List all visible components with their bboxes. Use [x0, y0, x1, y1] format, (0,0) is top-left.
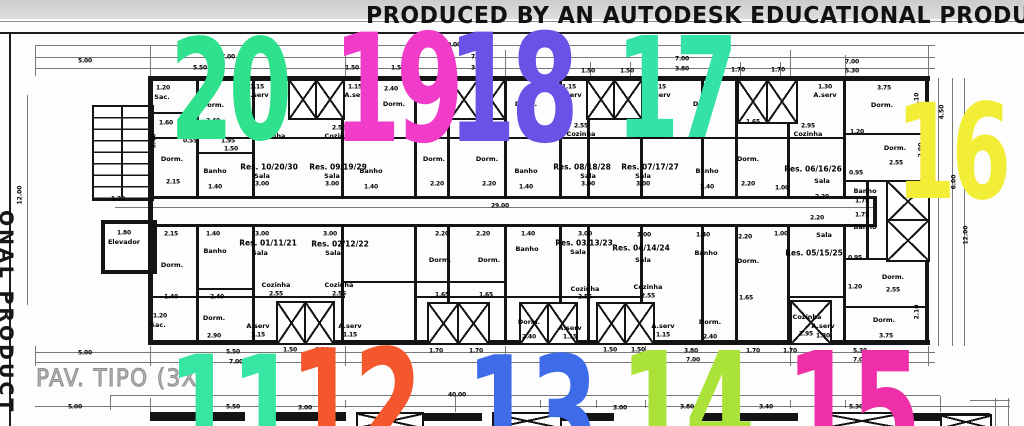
room-label: Banho: [853, 187, 876, 195]
shaft-xbox: [427, 302, 460, 345]
dimension-label: 1.70: [771, 67, 785, 74]
dimension-label: 3.40: [759, 404, 773, 411]
overlay-number-14: 14: [620, 332, 750, 426]
dimension-line: [970, 400, 1010, 401]
dimension-label: 1.65: [435, 292, 449, 299]
dimension-label: 2.20: [815, 194, 829, 201]
dimension-line: [790, 50, 791, 76]
dimension-label: 2.55: [332, 291, 346, 298]
shaft-xbox: [288, 79, 318, 120]
wall-segment: [150, 296, 345, 298]
unit-label: Res. 05/15/25: [785, 249, 843, 258]
unit-label: Res. 02/12/22: [311, 240, 369, 249]
dimension-label: 1.50: [581, 68, 595, 75]
room-label: Cozinha: [262, 281, 291, 289]
dimension-label: 1.20: [153, 313, 167, 320]
overlay-number-16: 16: [896, 87, 1007, 219]
dimension-label: 1.50: [603, 347, 617, 354]
room-label: Sala: [580, 172, 596, 180]
room-label: Banho: [694, 249, 717, 257]
room-label: Dorm.: [737, 257, 759, 265]
dimension-label: 2.10: [914, 305, 921, 320]
dimension-label: 2.55: [641, 293, 655, 300]
shaft-xbox: [586, 79, 616, 120]
room-label: Dorm.: [429, 256, 451, 264]
dimension-label: 2.20: [482, 181, 496, 188]
dimension-label: 5.30: [845, 68, 859, 75]
room-label: Cozinha: [571, 285, 600, 293]
room-label: Elevador: [108, 238, 140, 246]
dimension-label: 1.80: [117, 230, 131, 237]
dimension-label: 2.20: [738, 234, 752, 241]
dimension-line: [928, 46, 929, 76]
wall-segment: [787, 296, 845, 298]
dimension-label: 1.40: [521, 231, 535, 238]
dimension-label: 1.70: [429, 348, 443, 355]
dimension-label: 1.40: [700, 184, 714, 191]
dimension-line: [150, 398, 151, 412]
room-label: Sac.: [150, 321, 165, 329]
dimension-label: 2.20: [741, 181, 755, 188]
dimension-label: 1.40: [206, 231, 220, 238]
cad-floorplan-screenshot: PRODUCED BY AN AUTODESK EDUCATIONAL PROD…: [0, 0, 1024, 426]
dimension-line: [150, 346, 151, 366]
dimension-line: [110, 396, 111, 410]
room-label: Sala: [635, 256, 651, 264]
dimension-label: 29.00: [491, 203, 509, 210]
dimension-label: 3.00: [325, 181, 339, 188]
dimension-label: 40.00: [448, 392, 466, 399]
dimension-line: [995, 398, 996, 426]
dimension-label: 1.00: [775, 185, 789, 192]
dimension-label: 3.00: [578, 231, 592, 238]
dimension-line: [27, 95, 28, 305]
dimension-label: 3.40: [151, 134, 158, 149]
dimension-label: 1.20: [156, 85, 170, 92]
dimension-label: 2.20: [430, 181, 444, 188]
dimension-label: 1.75: [855, 198, 869, 205]
dimension-label: 3.00: [255, 181, 269, 188]
dimension-label: 2.55: [574, 123, 588, 130]
room-label: A.serv: [813, 91, 836, 99]
dimension-label: 3.00: [255, 231, 269, 238]
dimension-label: 5.00: [68, 404, 82, 411]
dimension-label: 1.40: [364, 184, 378, 191]
room-label: Cozinha: [325, 281, 354, 289]
unit-label: Res. 04/14/24: [612, 244, 670, 253]
dimension-label: 2.20: [810, 215, 824, 222]
room-label: Banho: [853, 223, 876, 231]
dimension-label: 3.00: [323, 231, 337, 238]
dimension-line: [1008, 398, 1009, 426]
room-label: Sala: [254, 172, 270, 180]
room-label: Dorm.: [871, 101, 893, 109]
stairs: [92, 105, 154, 201]
autodesk-banner-vertical-text: ONAL PRODUCT: [0, 210, 17, 414]
dimension-label: 1.40: [519, 184, 533, 191]
wall-segment: [153, 196, 875, 199]
overlay-number-11: 11: [168, 337, 294, 426]
dimension-label: 2.55: [269, 291, 283, 298]
room-label: Sala: [635, 172, 651, 180]
dimension-line: [150, 46, 151, 76]
room-label: Dorm.: [478, 256, 500, 264]
overlay-number-15: 15: [786, 332, 916, 426]
room-label: Sac.: [154, 93, 169, 101]
room-label: Sala: [252, 249, 268, 257]
dimension-label: 1.40: [696, 232, 710, 239]
dimension-label: 1.20: [848, 284, 862, 291]
room-label: Sala: [816, 231, 832, 239]
dimension-label: 2.95: [801, 123, 815, 130]
room-label: Banho: [515, 245, 538, 253]
room-label: Banho: [203, 247, 226, 255]
dimension-label: 2.55: [886, 287, 900, 294]
dimension-label: 1.20: [850, 129, 864, 136]
dimension-label: 3.00: [637, 232, 651, 239]
room-label: Sala: [570, 248, 586, 256]
room-label: Dorm.: [882, 273, 904, 281]
dimension-label: 7.00: [845, 59, 859, 66]
room-label: Cozinha: [634, 283, 663, 291]
wall-segment: [198, 288, 254, 290]
dimension-label: 1.65: [479, 292, 493, 299]
dimension-label: 5.00: [78, 58, 92, 65]
room-label: Sala: [814, 177, 830, 185]
overlay-number-17: 17: [616, 20, 734, 160]
dimension-label: 1.30: [818, 84, 832, 91]
dimension-label: 1.75: [855, 212, 869, 219]
overlay-number-19: 19: [333, 15, 459, 165]
dimension-label: 1.65: [746, 119, 760, 126]
unit-label: Res. 01/11/21: [239, 239, 297, 248]
dimension-label: 2.15: [166, 179, 180, 186]
overlay-number-13: 13: [466, 337, 594, 426]
dimension-label: 1.40: [208, 184, 222, 191]
shaft-xbox: [940, 414, 992, 426]
wall-segment: [121, 107, 123, 197]
room-label: Cozinha: [794, 130, 823, 138]
dimension-label: 3.00: [636, 181, 650, 188]
dimension-label: 1.00: [774, 231, 788, 238]
shaft-xbox: [737, 79, 769, 124]
dimension-label: 2.20: [435, 231, 449, 238]
overlay-number-12: 12: [290, 330, 418, 426]
overlay-number-18: 18: [448, 15, 574, 165]
dimension-label: 1.20: [111, 196, 125, 203]
dimension-label: 12.00: [17, 186, 24, 205]
dimension-line: [940, 396, 941, 412]
dimension-label: 2.15: [164, 231, 178, 238]
dimension-label: 5.00: [78, 350, 92, 357]
unit-label: Res. 03/13/23: [555, 239, 613, 248]
room-label: Dorm.: [737, 155, 759, 163]
dimension-label: 1.40: [164, 294, 178, 301]
dimension-line: [35, 346, 36, 366]
overlay-number-20: 20: [170, 22, 288, 162]
dimension-line: [596, 400, 597, 408]
room-label: Dorm.: [203, 314, 225, 322]
dimension-label: 3.00: [581, 181, 595, 188]
wall-segment: [153, 224, 875, 227]
dimension-line: [928, 346, 929, 366]
unit-label: Res. 06/16/26: [784, 165, 842, 174]
room-label: Dorm.: [161, 261, 183, 269]
wall-segment: [148, 76, 153, 345]
shaft-xbox: [766, 79, 798, 124]
dimension-label: 3.75: [877, 85, 891, 92]
wall-segment: [341, 281, 506, 283]
dimension-label: 1.65: [739, 295, 753, 302]
dimension-label: 2.55: [578, 294, 592, 301]
dimension-label: 0.95: [848, 255, 862, 262]
dimension-label: 2.40: [210, 294, 224, 301]
dimension-label: 0.95: [849, 170, 863, 177]
room-label: Sala: [325, 249, 341, 257]
dimension-line: [35, 46, 36, 76]
dimension-label: 2.20: [476, 231, 490, 238]
